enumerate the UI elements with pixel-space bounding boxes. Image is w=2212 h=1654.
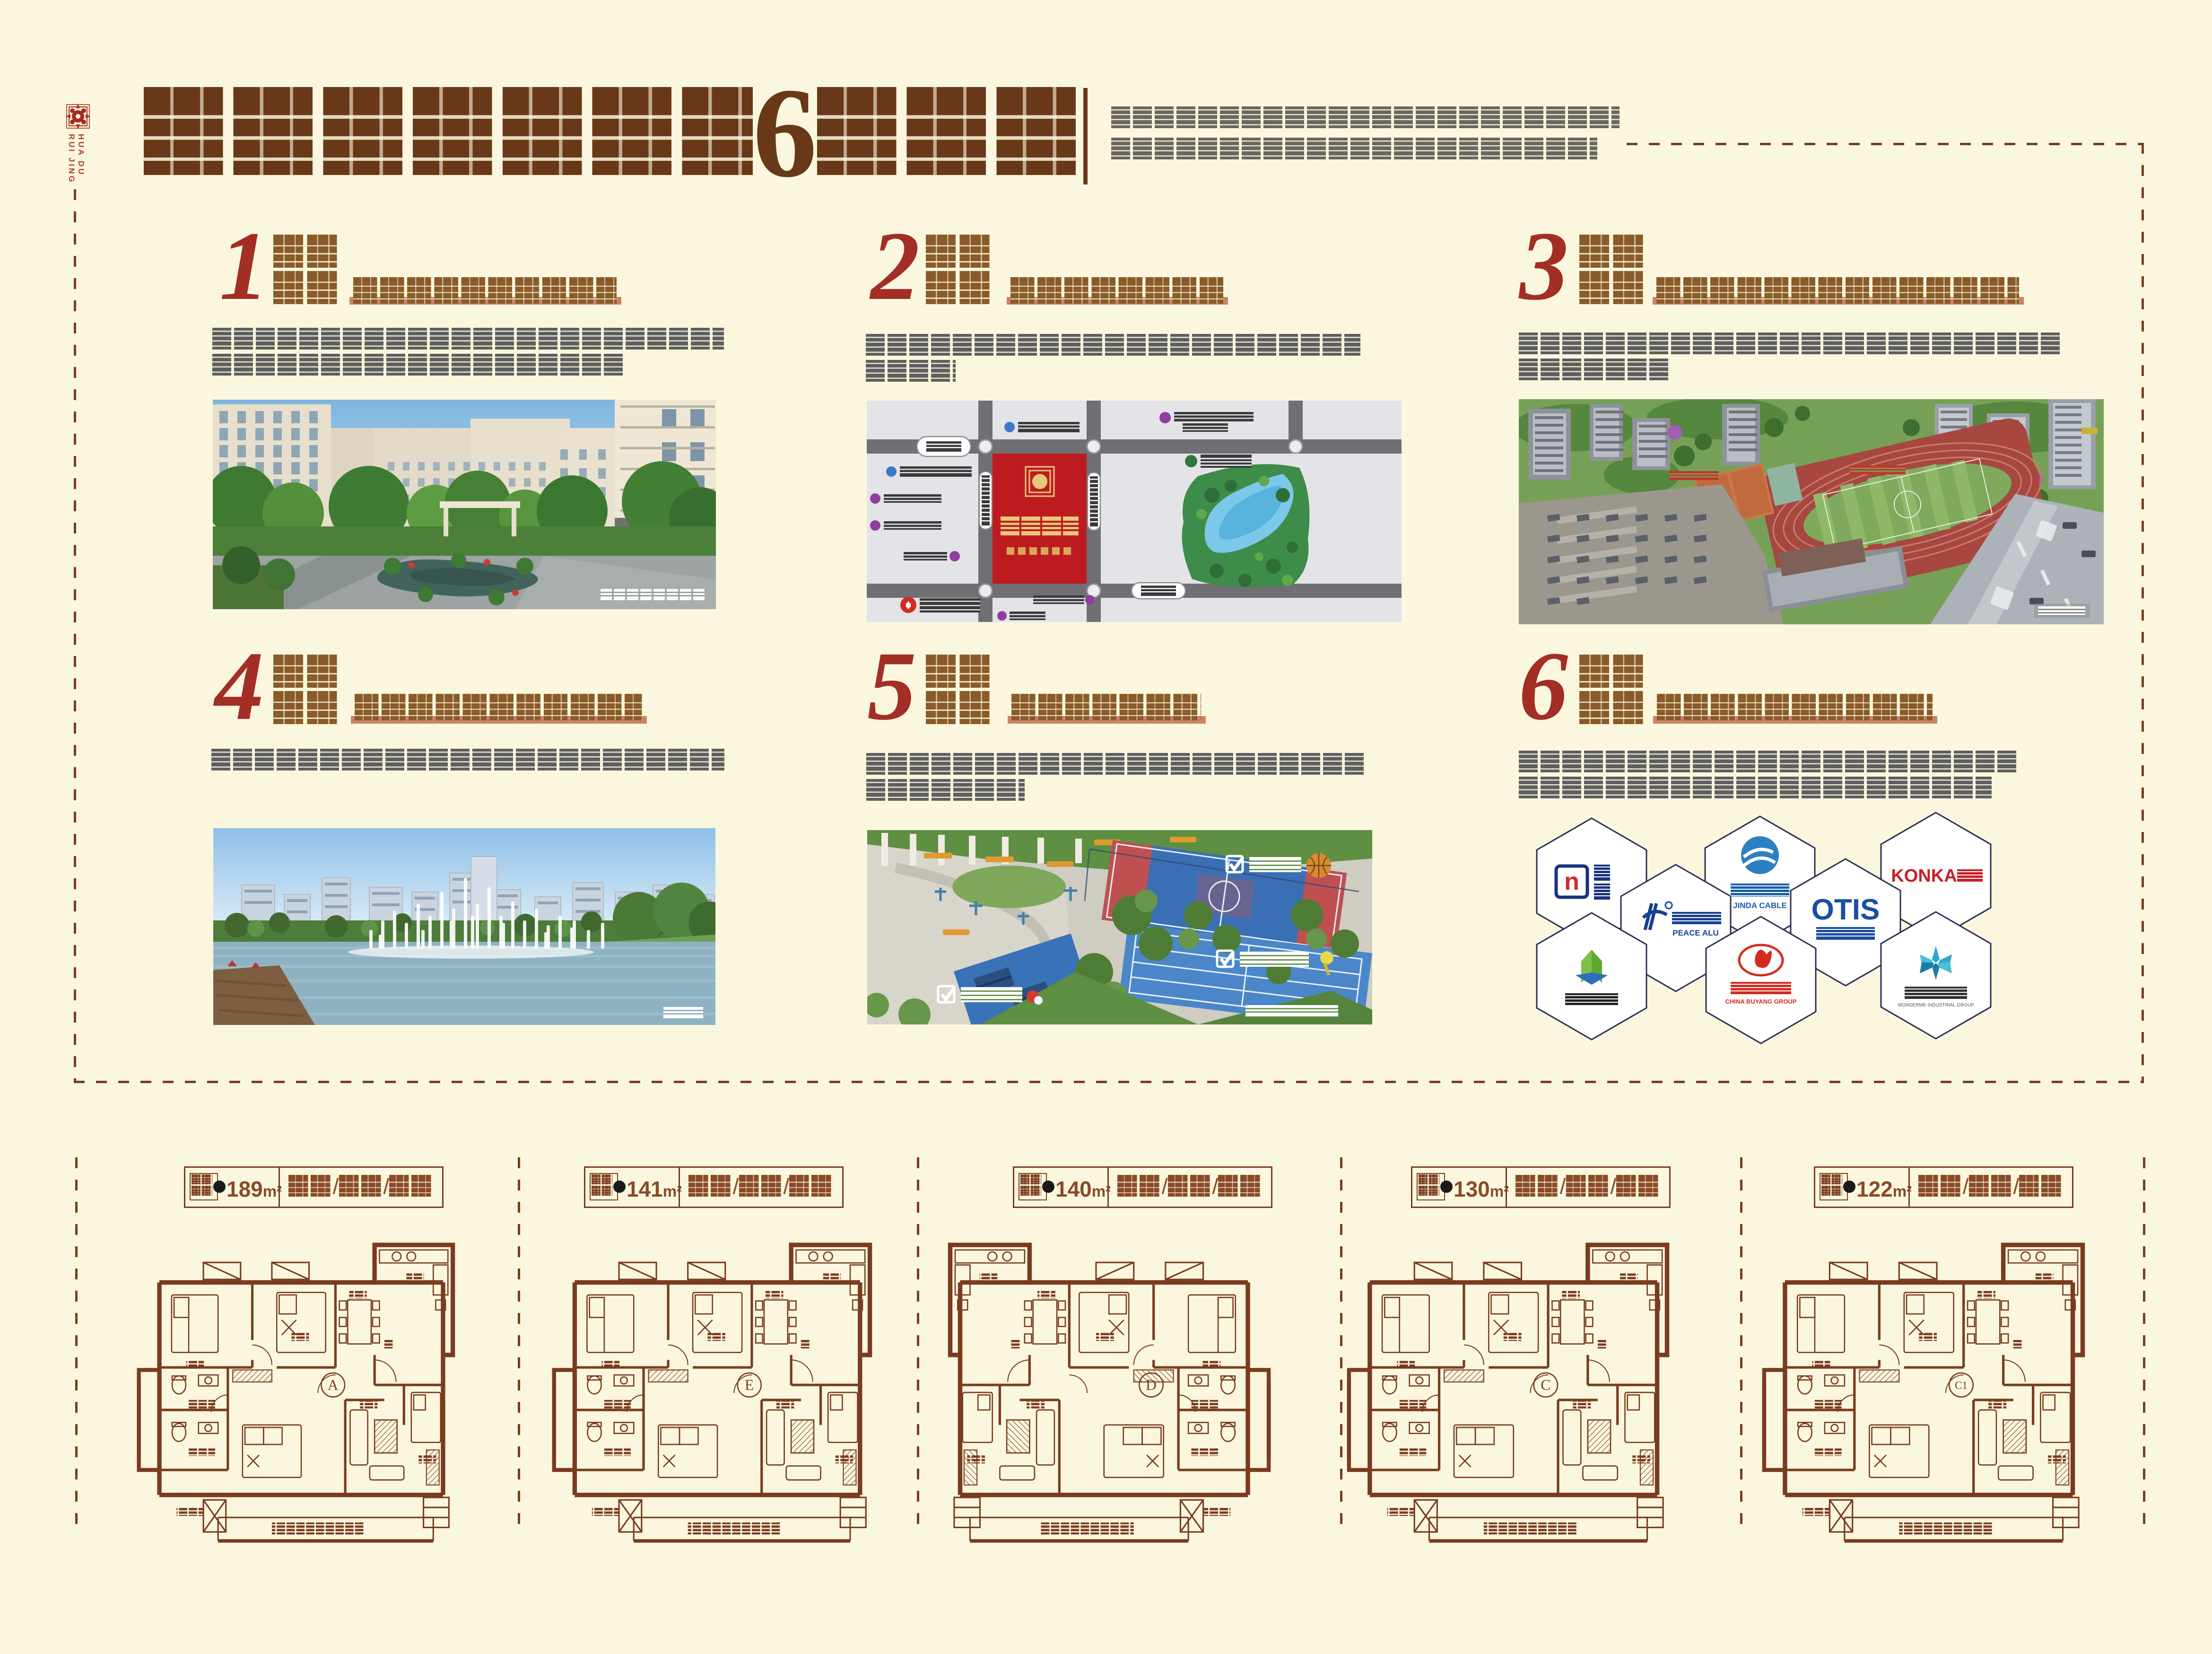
- svg-text:OTIS: OTIS: [1811, 893, 1880, 926]
- svg-text:D: D: [1146, 1377, 1157, 1393]
- svg-text:CHINA BUYANG GROUP: CHINA BUYANG GROUP: [1725, 998, 1797, 1005]
- svg-text:n: n: [1564, 868, 1579, 895]
- svg-text:PEACE ALU: PEACE ALU: [1672, 928, 1719, 937]
- svg-text:C: C: [1541, 1377, 1550, 1393]
- svg-text:KONKA: KONKA: [1891, 866, 1957, 886]
- svg-text:WONDERME INDUSTRIAL GROUP: WONDERME INDUSTRIAL GROUP: [1898, 1003, 1974, 1008]
- svg-text:JINDA CABLE: JINDA CABLE: [1733, 901, 1787, 910]
- svg-text:A: A: [328, 1376, 339, 1393]
- svg-text:C1: C1: [1955, 1380, 1968, 1392]
- svg-text:E: E: [745, 1376, 754, 1393]
